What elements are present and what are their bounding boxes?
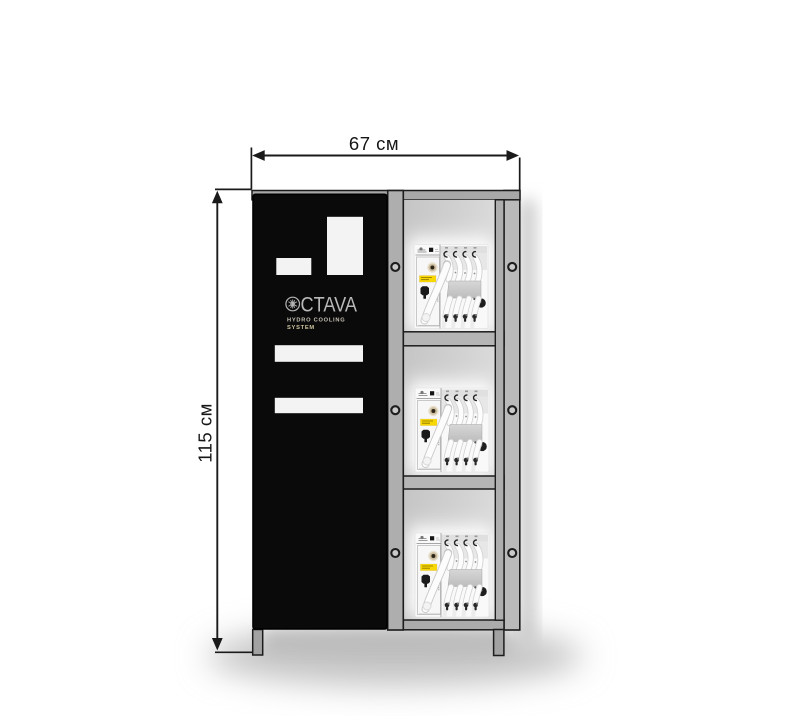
svg-text:HYDRO COOLING: HYDRO COOLING <box>287 318 345 324</box>
svg-text:CTAVA: CTAVA <box>301 293 358 317</box>
svg-text:115 см: 115 см <box>195 403 216 463</box>
svg-text:SYSTEM: SYSTEM <box>287 325 315 331</box>
svg-text:67 см: 67 см <box>349 133 399 154</box>
